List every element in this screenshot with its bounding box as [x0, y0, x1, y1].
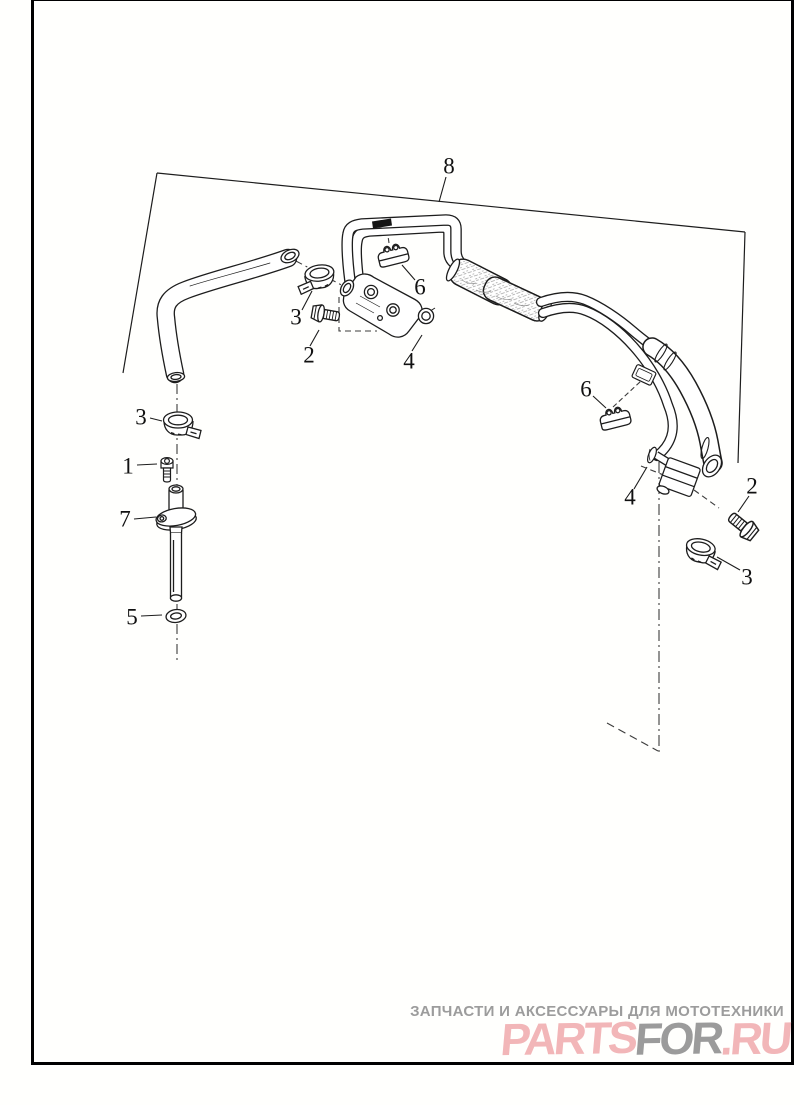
lower-tube	[543, 308, 673, 456]
callout-7-7: 7	[119, 507, 131, 532]
callout-2-11: 2	[746, 474, 758, 499]
callout-3-5: 3	[135, 405, 147, 430]
callout-6-9: 6	[580, 377, 592, 402]
o-ring-5	[165, 608, 187, 623]
callout-6-4: 6	[414, 275, 426, 300]
mounting-flange	[343, 274, 422, 337]
end-fitting	[656, 455, 701, 497]
callout-3-1: 3	[290, 305, 302, 330]
parts-diagram: 8324631756423	[0, 0, 800, 1105]
heat-wrap-section	[444, 255, 554, 324]
clamp-3-left	[164, 412, 202, 439]
callout-3-12: 3	[741, 565, 753, 590]
clamp-3-right	[683, 536, 725, 570]
tube-7	[155, 485, 198, 601]
clamp-3-top	[296, 263, 337, 294]
callout-leaders	[134, 177, 749, 616]
bolt-1	[161, 458, 173, 482]
callout-5-8: 5	[126, 605, 138, 630]
callout-4-10: 4	[624, 485, 636, 510]
callout-8-0: 8	[443, 154, 455, 179]
centerlines	[177, 229, 719, 752]
bolt-2-top	[311, 304, 341, 326]
clip-6-right	[598, 405, 632, 431]
diagram-page: 8324631756423 ЗАПЧАСТИ И АКСЕССУАРЫ ДЛЯ …	[0, 0, 800, 1105]
o-ring-4-top	[418, 308, 435, 324]
callout-2-2: 2	[303, 343, 315, 368]
callout-1-6: 1	[122, 454, 134, 479]
bolt-2-right	[725, 509, 761, 543]
clip-6-top	[376, 242, 410, 268]
bent-hose	[166, 258, 288, 374]
callout-4-3: 4	[403, 349, 415, 374]
